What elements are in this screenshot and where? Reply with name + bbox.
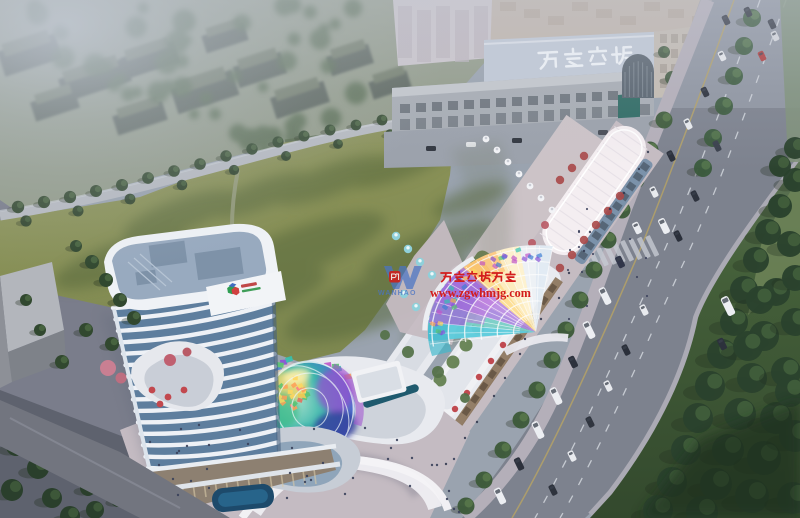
svg-text:WANHAO: WANHAO [378,290,417,297]
svg-text:www.zgwhmjg.com: www.zgwhmjg.com [430,286,531,300]
